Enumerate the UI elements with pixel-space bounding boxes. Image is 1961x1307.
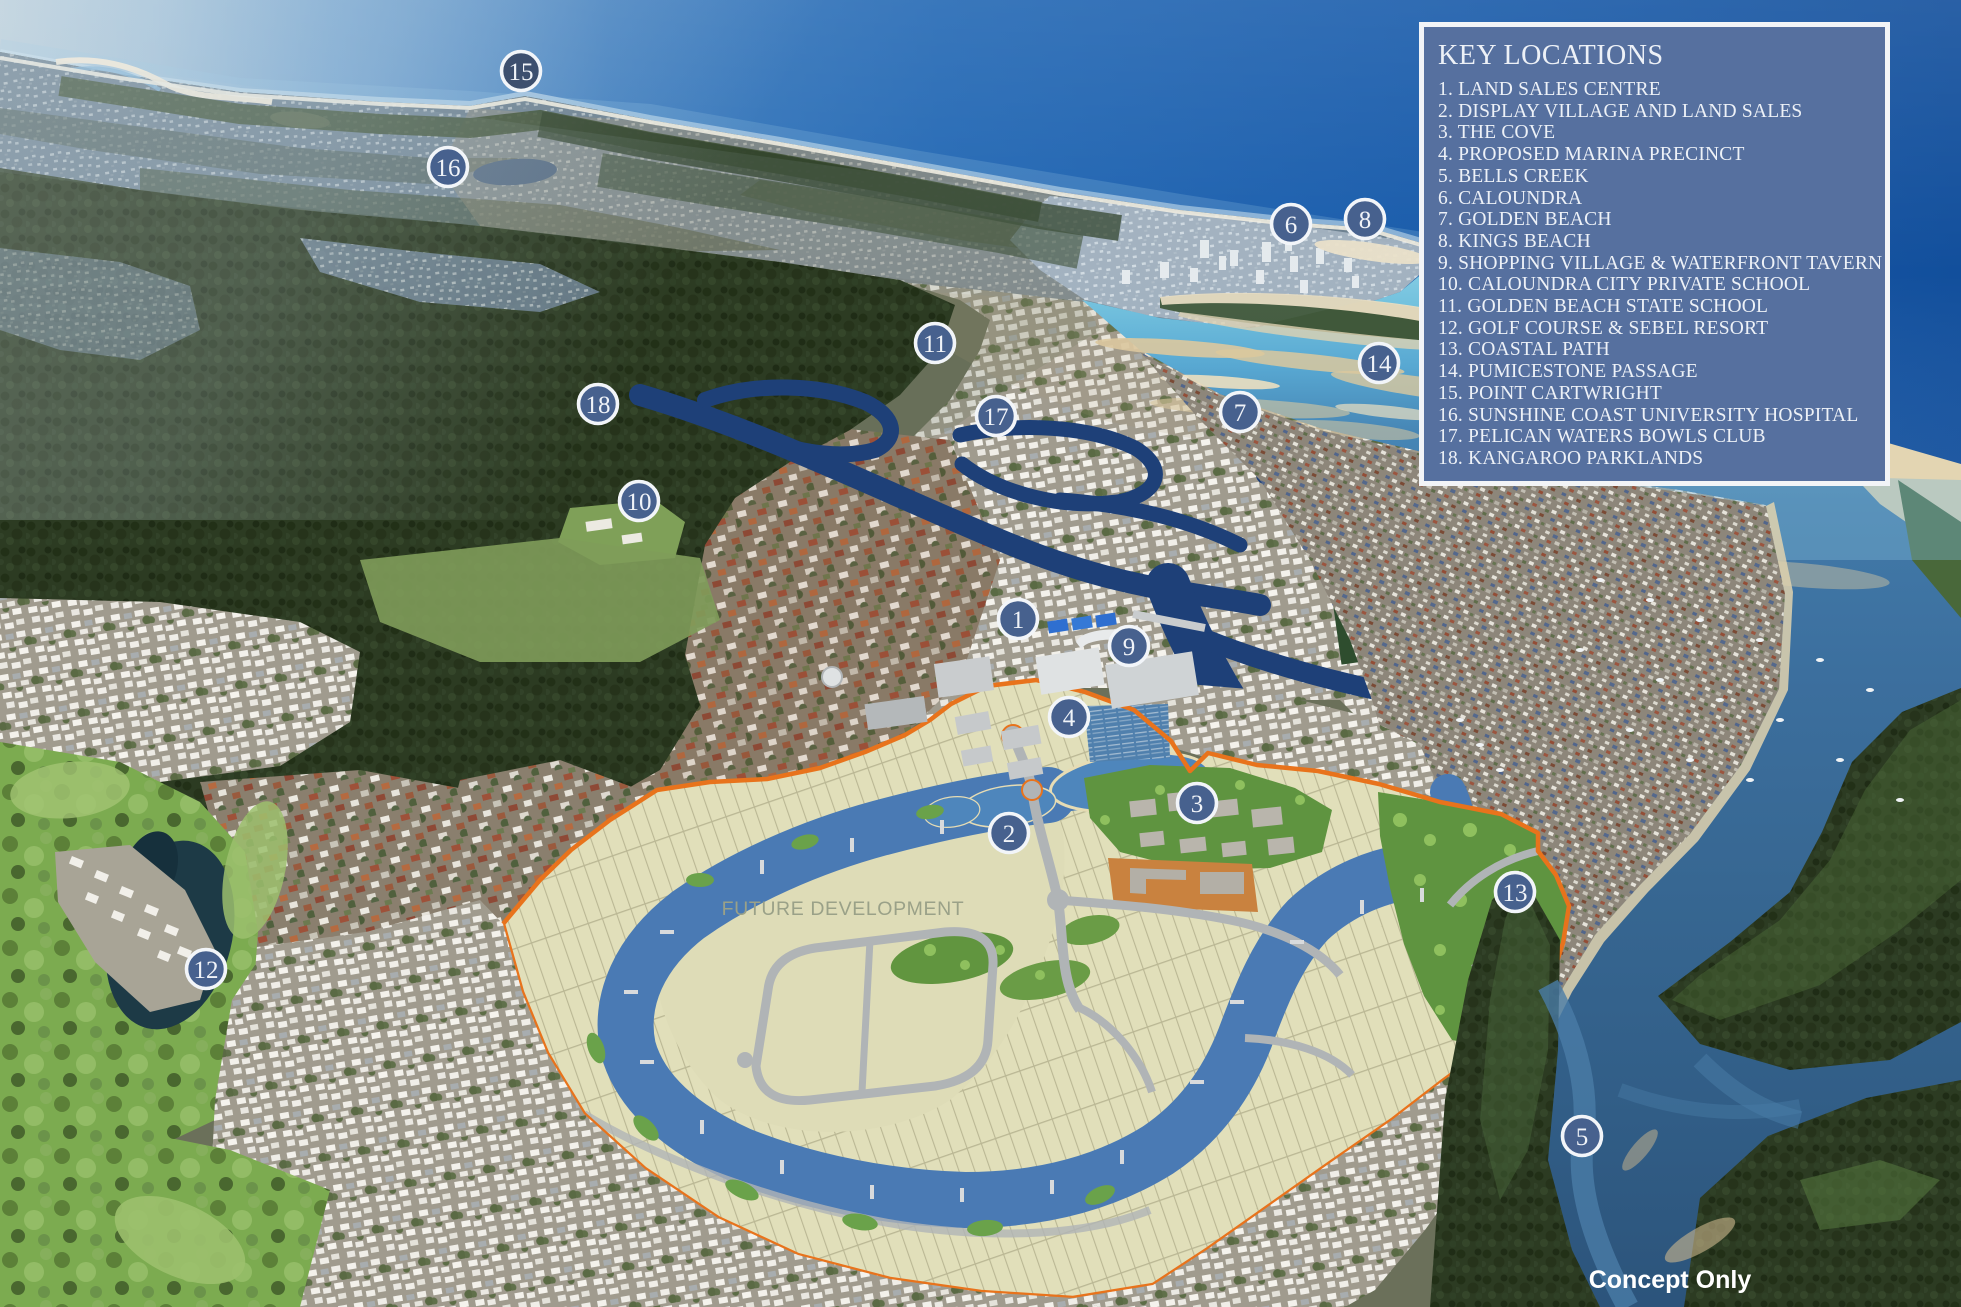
svg-text:3: 3	[1191, 791, 1204, 818]
svg-text:2: 2	[1003, 821, 1016, 848]
svg-text:14: 14	[1367, 351, 1393, 378]
svg-text:11: 11	[923, 331, 947, 358]
svg-text:4: 4	[1063, 705, 1076, 732]
svg-text:FUTURE DEVELOPMENT: FUTURE DEVELOPMENT	[722, 898, 965, 920]
svg-text:9: 9	[1123, 634, 1136, 661]
svg-text:10: 10	[627, 489, 652, 516]
svg-text:12: 12	[194, 957, 219, 984]
svg-text:5: 5	[1576, 1124, 1589, 1151]
svg-text:17: 17	[984, 404, 1009, 431]
svg-text:15: 15	[509, 59, 534, 86]
svg-text:16: 16	[436, 155, 461, 182]
svg-text:1: 1	[1012, 607, 1025, 634]
svg-text:13: 13	[1503, 880, 1528, 907]
svg-text:18: 18	[586, 392, 611, 419]
svg-text:7: 7	[1234, 400, 1247, 427]
svg-text:Concept Only: Concept Only	[1589, 1266, 1752, 1294]
svg-text:8: 8	[1359, 207, 1372, 234]
svg-text:6: 6	[1285, 212, 1298, 239]
